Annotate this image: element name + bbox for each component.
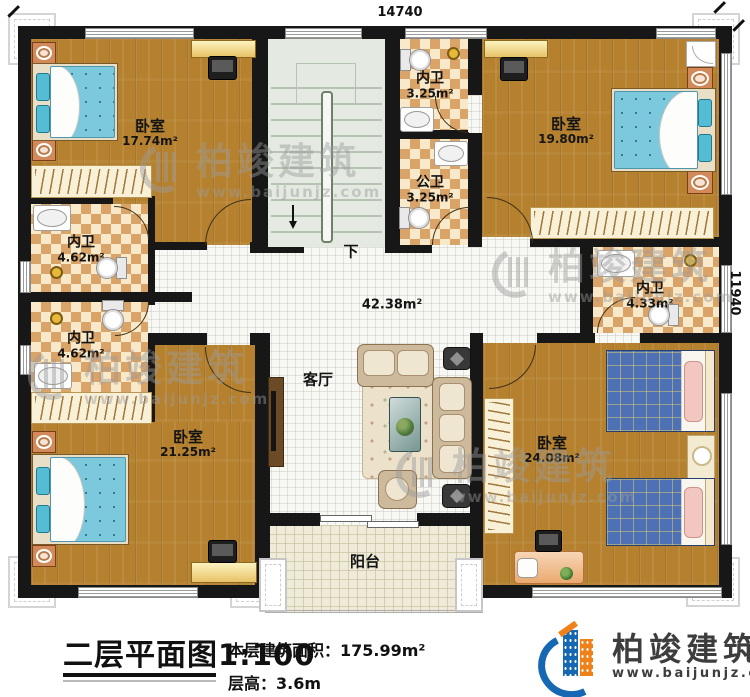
sliding-door — [320, 515, 372, 522]
room-name: 卧室 — [538, 116, 594, 133]
wall-segment — [148, 333, 207, 345]
sink — [34, 363, 72, 389]
window — [20, 261, 31, 293]
window — [532, 587, 722, 598]
room-name: 内卫 — [57, 235, 104, 251]
sink — [434, 141, 468, 166]
double-bed — [611, 88, 716, 172]
floor-height-value: 3.6m — [276, 674, 321, 693]
sliding-door — [367, 521, 419, 528]
plan-title-text: 二层平面图 — [63, 638, 218, 673]
window — [721, 393, 732, 545]
nightstand — [32, 139, 56, 161]
wall-segment — [385, 39, 400, 247]
room-name: 公卫 — [406, 175, 453, 191]
computer-chair — [208, 540, 237, 563]
window — [405, 28, 487, 39]
side-table — [442, 484, 471, 508]
window — [285, 28, 362, 39]
potted-plant — [560, 567, 573, 580]
room-area: 3.25m² — [406, 191, 453, 204]
sink — [400, 107, 434, 132]
nightstand — [687, 171, 713, 194]
window — [20, 345, 31, 375]
side-table — [443, 347, 471, 370]
light-fixture — [50, 312, 63, 325]
window — [85, 28, 194, 39]
balcony-post — [259, 558, 287, 612]
room-label-ensuite-left-upper: 内卫 4.62m² — [57, 235, 104, 264]
wall-segment — [537, 333, 595, 343]
brand-name: 柏竣建筑 — [612, 633, 750, 667]
wall-segment — [250, 242, 268, 253]
room-label-ensuite-left-lower: 内卫 4.62m² — [57, 331, 104, 360]
floor-plan: 卧室 17.74m² 卧室 19.80m² 卧室 21.25m² 卧室 24.0… — [0, 0, 750, 620]
direction-text: 下 — [343, 244, 358, 261]
three-seat-sofa — [432, 377, 472, 479]
computer — [535, 530, 562, 552]
wall-segment — [640, 333, 719, 343]
room-area: 19.80m² — [538, 133, 594, 146]
toilet — [399, 207, 429, 231]
desk — [484, 40, 548, 58]
room-name: 内卫 — [406, 71, 453, 87]
stair-direction-arrow — [292, 205, 294, 223]
nightstand — [32, 42, 56, 64]
brand-url: www.baijunjz.com — [612, 666, 750, 681]
wall-segment — [255, 513, 320, 526]
light-fixture — [447, 47, 460, 60]
room-area: 42.38m² — [362, 299, 422, 314]
plan-info: 本层建筑面积：175.99m² 层高：3.6m — [228, 637, 425, 697]
wall-segment — [468, 133, 482, 247]
room-name: 卧室 — [122, 118, 178, 135]
wardrobe — [530, 207, 714, 239]
corner-cabinet — [686, 41, 716, 67]
brand-logo-icon — [538, 626, 604, 688]
nightstand — [687, 67, 713, 90]
room-area: 4.62m² — [57, 251, 104, 264]
dimension-top: 14740 — [370, 5, 430, 20]
twin-bed — [606, 478, 715, 546]
dimension-right: 11940 — [727, 258, 742, 328]
brand-logo: 柏竣建筑 www.baijunjz.com — [538, 626, 750, 688]
light-fixture — [684, 254, 697, 267]
window — [721, 53, 732, 195]
wardrobe — [484, 398, 514, 534]
nightstand — [32, 545, 56, 567]
desk — [191, 562, 257, 583]
toilet — [400, 49, 430, 73]
wardrobe — [31, 392, 152, 424]
window — [78, 587, 198, 598]
floor-area-label: 本层建筑面积： — [228, 641, 340, 660]
wall-segment — [18, 26, 31, 598]
wardrobe — [31, 165, 152, 198]
wall-segment — [468, 39, 482, 95]
loveseat-sofa — [357, 344, 434, 387]
nightstand — [32, 431, 56, 453]
double-bed — [32, 454, 129, 545]
tv — [271, 391, 276, 451]
wall-segment — [152, 242, 207, 250]
double-bed — [32, 63, 118, 141]
floor-area-value: 175.99m² — [340, 641, 425, 660]
wall-segment — [385, 245, 432, 253]
room-name: 客厅 — [303, 372, 333, 389]
room-label-public-bath: 公卫 3.25m² — [406, 175, 453, 204]
computer-chair — [500, 57, 528, 81]
room-label-ensuite-right: 内卫 4.33m² — [626, 281, 673, 310]
wall-segment — [580, 247, 593, 333]
twin-bed — [606, 350, 715, 432]
dimension-tick — [713, 1, 725, 13]
nightstand — [687, 435, 715, 479]
computer-chair — [208, 56, 237, 80]
room-name: 阳台 — [350, 554, 380, 571]
room-label-bedroom-tr: 卧室 19.80m² — [538, 116, 594, 146]
caption-bar: 二层平面图1:100 本层建筑面积：175.99m² 层高：3.6m 柏竣建筑 … — [0, 620, 750, 697]
room-area: 24.08m² — [524, 452, 580, 465]
light-fixture — [50, 266, 63, 279]
room-label-ensuite-top: 内卫 3.25m² — [406, 71, 453, 100]
wall-segment — [252, 39, 268, 247]
room-area: 3.25m² — [406, 87, 453, 100]
room-area: 17.74m² — [122, 135, 178, 148]
stairs-down-label: 下 — [343, 244, 358, 261]
room-name: 内卫 — [57, 331, 104, 347]
living-room-area-label: 42.38m² — [362, 299, 422, 314]
room-name: 卧室 — [524, 435, 580, 452]
room-area: 4.33m² — [626, 297, 673, 310]
room-name: 卧室 — [160, 429, 216, 446]
title-underline — [63, 673, 216, 677]
room-label-bedroom-br: 卧室 24.08m² — [524, 435, 580, 465]
wall-segment — [148, 196, 155, 305]
balcony-post — [455, 558, 483, 612]
room-label-bedroom-bl: 卧室 21.25m² — [160, 429, 216, 459]
sink — [597, 250, 635, 277]
room-area: 21.25m² — [160, 446, 216, 459]
title-underline-thin — [63, 680, 216, 682]
room-name: 内卫 — [626, 281, 673, 297]
room-label-bedroom-tl: 卧室 17.74m² — [122, 118, 178, 148]
stairwell — [268, 39, 385, 247]
balcony-label: 阳台 — [350, 554, 380, 571]
sink — [33, 205, 71, 231]
stair-handrail — [321, 91, 333, 243]
window — [656, 28, 716, 39]
living-room-name-label: 客厅 — [303, 372, 333, 389]
armchair — [378, 470, 417, 509]
floor-plan-page: 卧室 17.74m² 卧室 19.80m² 卧室 21.25m² 卧室 24.0… — [0, 0, 750, 697]
chair — [517, 558, 538, 578]
room-area: 4.62m² — [57, 347, 104, 360]
coffee-table — [389, 397, 421, 452]
floor-height-label: 层高： — [228, 674, 276, 693]
